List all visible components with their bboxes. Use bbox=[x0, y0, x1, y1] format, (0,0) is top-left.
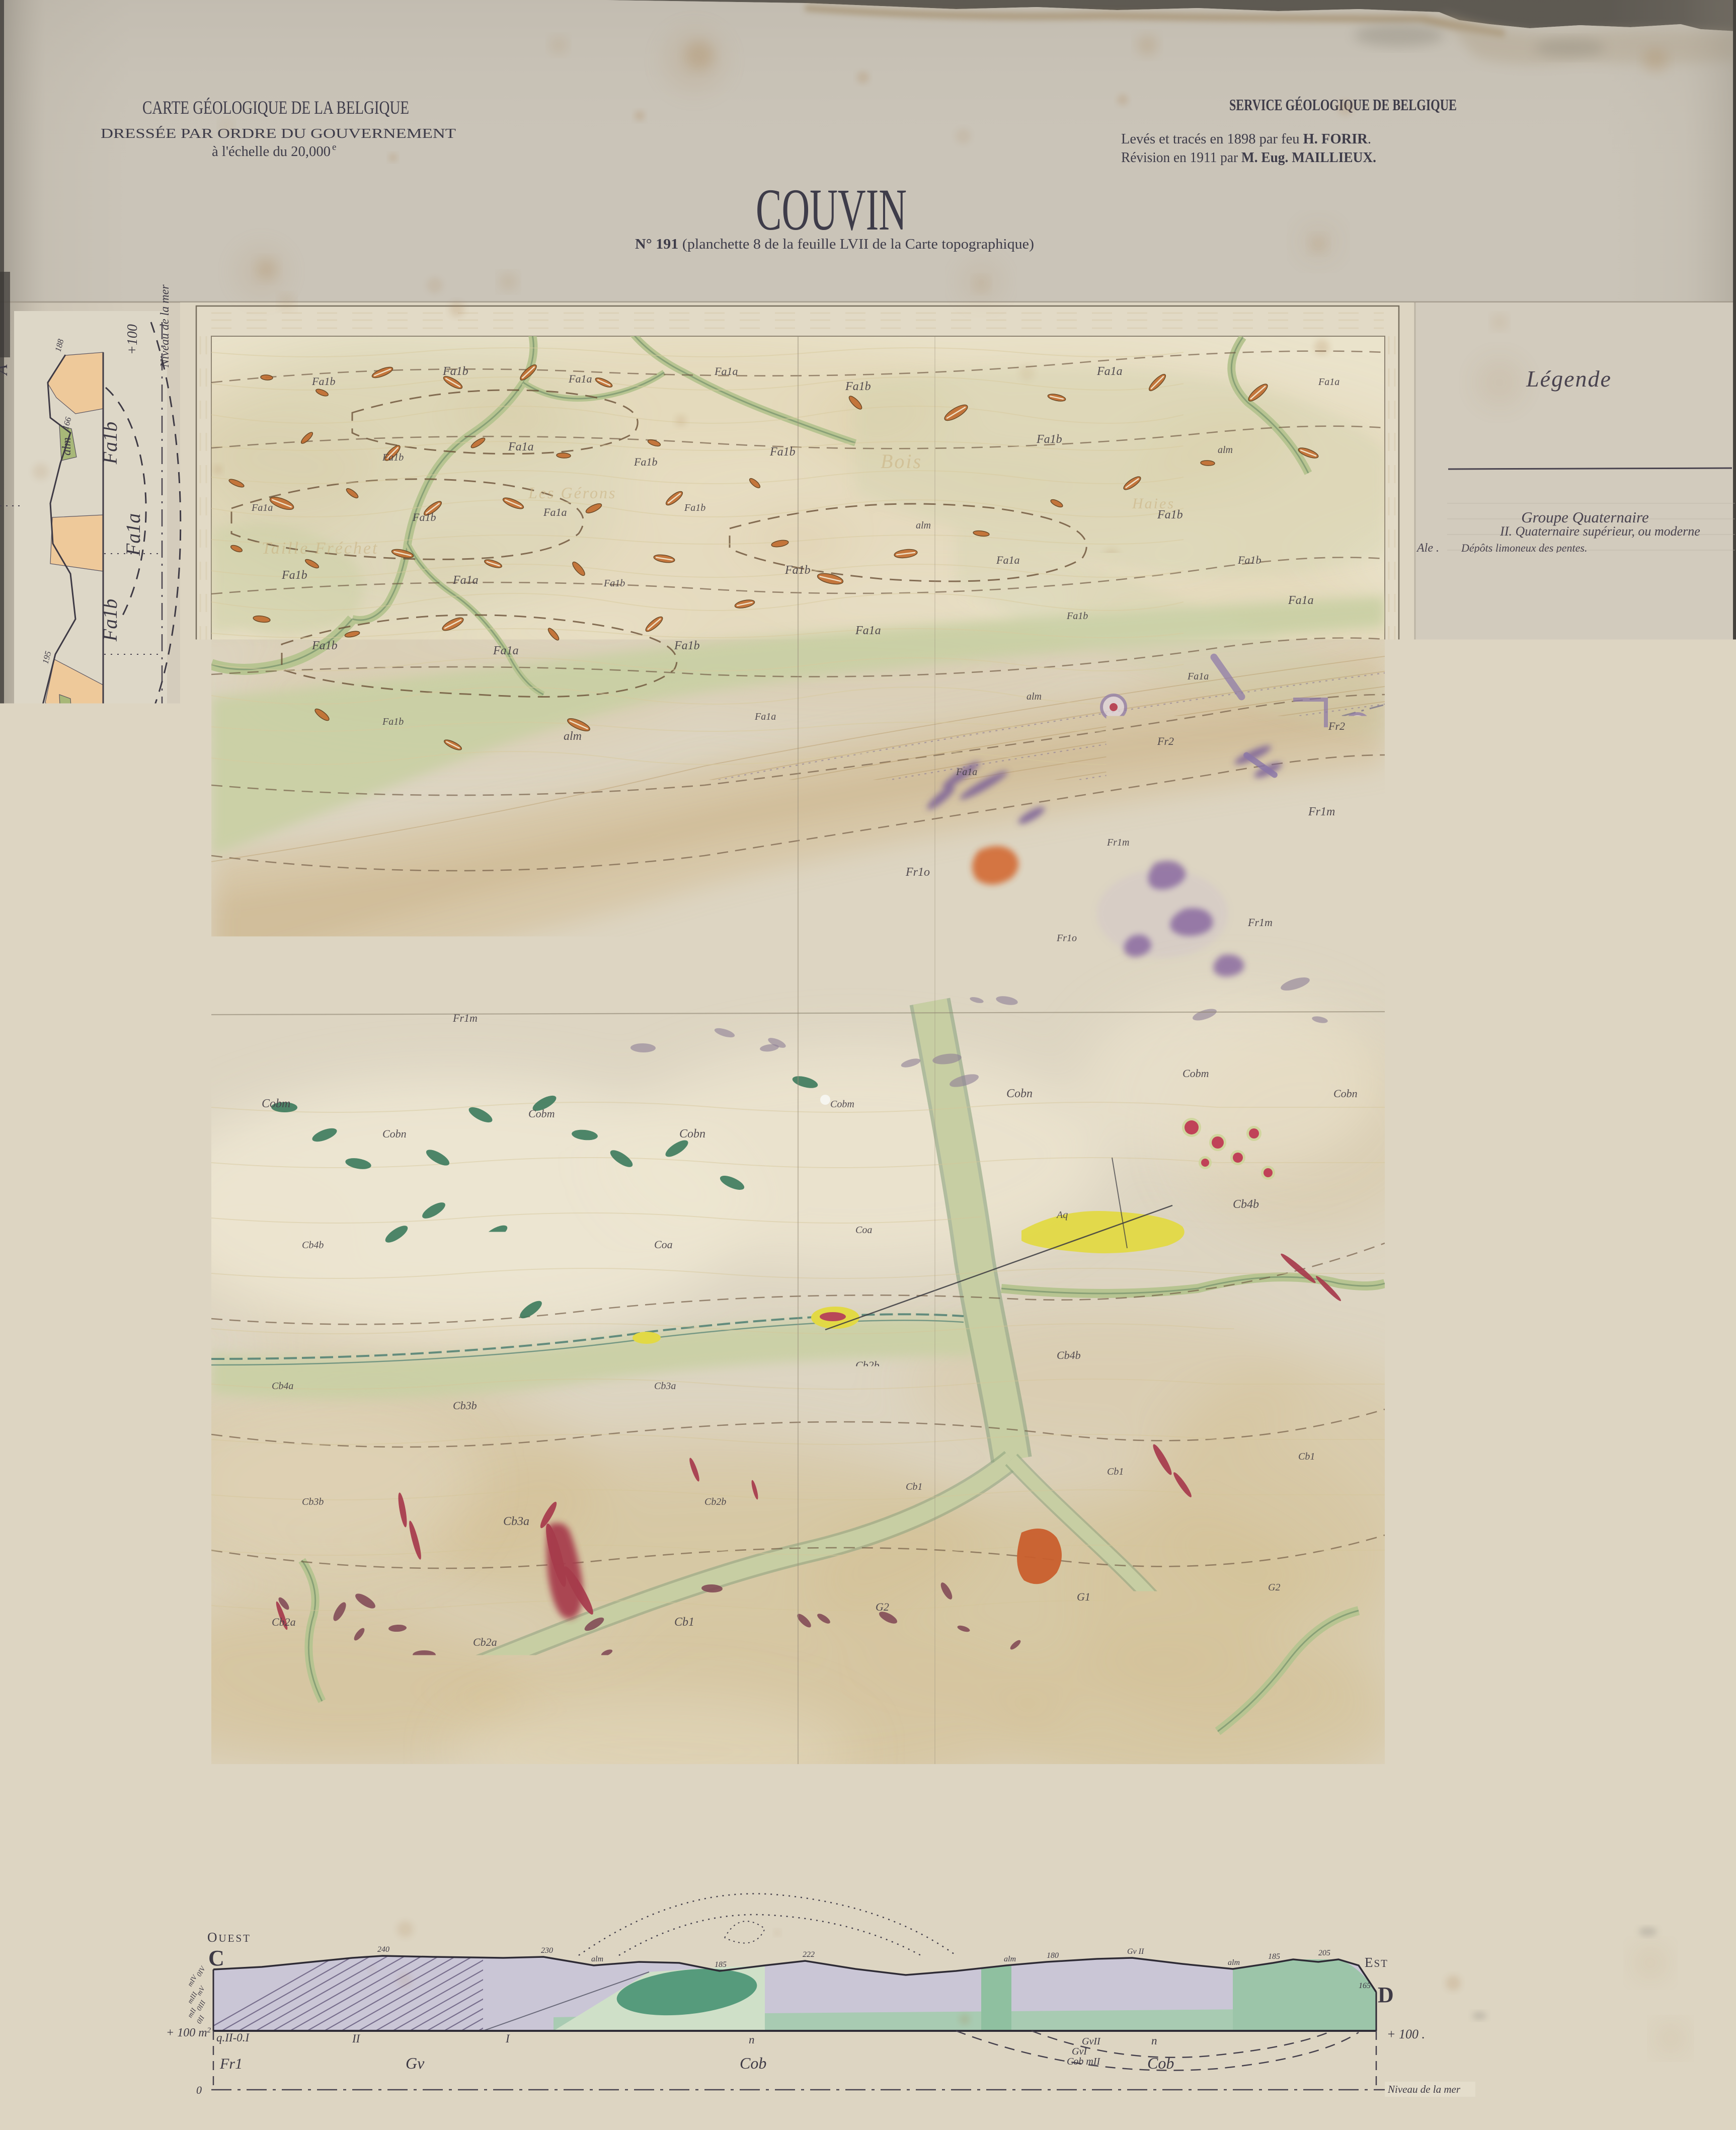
svg-text:Fa1b: Fa1b bbox=[382, 452, 404, 463]
svg-text:Cobn: Cobn bbox=[679, 1127, 705, 1140]
svg-text:Fa1a: Fa1a bbox=[452, 574, 479, 587]
svg-text:Fr1 pII: Fr1 pII bbox=[1412, 922, 1444, 934]
svg-text:ay.: ay. bbox=[6, 758, 21, 773]
svg-text:Alm.: Alm. bbox=[1416, 554, 1440, 567]
svg-text:Cb2a: Cb2a bbox=[272, 1616, 296, 1628]
svg-text:m: m bbox=[104, 1262, 117, 1270]
svg-text:Fa1a: Fa1a bbox=[1096, 365, 1123, 378]
svg-text:G1: G1 bbox=[1107, 1696, 1121, 1709]
svg-text:Fr1m: Fr1m bbox=[1308, 805, 1335, 818]
svg-text:Fa1b: Fa1b bbox=[412, 511, 436, 523]
svg-text:Dévonien supérieur: Dévonien supérieur bbox=[1529, 797, 1645, 813]
svg-text:Dépôts limoneux des pentes.: Dépôts limoneux des pentes. bbox=[1461, 542, 1588, 554]
svg-text:Δ: Δ bbox=[1416, 613, 1424, 625]
svg-text:Aisne R.eau — Ch.ée de Bruxell: Aisne R.eau — Ch.ée de Bruxelles à Bouss… bbox=[584, 1784, 594, 1943]
svg-text:Bonne: Bonne bbox=[493, 1206, 537, 1222]
svg-text:Cobn.II: Cobn.II bbox=[1417, 1177, 1453, 1189]
svg-text:Cb4b: Cb4b bbox=[1233, 1198, 1259, 1211]
svg-text:Cb2b: Cb2b bbox=[704, 1496, 726, 1507]
svg-text:Fa1b: Fa1b bbox=[382, 716, 404, 727]
svg-text:G1: G1 bbox=[704, 1718, 717, 1729]
svg-text:Fa1a: Fa1a bbox=[251, 502, 273, 513]
svg-text:I: I bbox=[505, 2032, 510, 2045]
svg-text:Cb4b: Cb4b bbox=[478, 1258, 504, 1271]
svg-text:Schistes noduleux à Spirifer p: Schistes noduleux à Spirifer pachyrhynch… bbox=[1469, 936, 1636, 947]
svg-text:Cb2a.: Cb2a. bbox=[1417, 1451, 1444, 1463]
svg-text:alm: alm bbox=[60, 437, 73, 455]
svg-text:Calcaire à Orthoceras nodulosu: Calcaire à Orthoceras nodulosum bbox=[1461, 1166, 1606, 1178]
svg-text:Cb1.: Cb1. bbox=[1417, 1475, 1439, 1487]
svg-text:alm: alm bbox=[38, 1362, 50, 1379]
svg-text:argile impure . ( Série de Teg: argile impure . ( Série de Tegelen ) = O… bbox=[1461, 684, 1638, 696]
svg-text:Schistes à Spirifer mucronatus: Schistes à Spirifer mucronatus , Sp. und… bbox=[1470, 1126, 1667, 1137]
svg-text:N° 191 (planchette 8 de la feu: N° 191 (planchette 8 de la feuille LVII … bbox=[635, 236, 1034, 252]
svg-text:180: 180 bbox=[1047, 1951, 1059, 1960]
svg-text:222: 222 bbox=[803, 1950, 815, 1959]
svg-text:Fr1 mI: Fr1 mI bbox=[1412, 1026, 1443, 1038]
svg-text:alm: alm bbox=[58, 747, 71, 765]
svg-text:Fr2: Fr2 bbox=[1157, 735, 1174, 747]
svg-text:DRESSÉE PAR ORDRE DU GOUVERNEM: DRESSÉE PAR ORDRE DU GOUVERNEMENT bbox=[101, 126, 456, 141]
svg-text:G1: G1 bbox=[1077, 1590, 1090, 1603]
svg-text:b: b bbox=[103, 1644, 118, 1650]
svg-text:+100: +100 bbox=[125, 324, 140, 355]
svg-text:alm: alm bbox=[1027, 691, 1042, 702]
svg-text:Fr2.: Fr2. bbox=[1416, 885, 1437, 897]
svg-text:Schistes à Spirifer speciosus: Schistes à Spirifer speciosus . bbox=[1461, 1177, 1587, 1189]
svg-text:Étage Aquitanien (Aq): Étage Aquitanien (Aq) bbox=[1529, 731, 1651, 746]
svg-text:Récif rouge de base .: Récif rouge de base . bbox=[1469, 1002, 1549, 1012]
svg-text:Fr1o: Fr1o bbox=[654, 993, 674, 1004]
svg-text:Phyllades, grauwacke, grès et: Phyllades, grauwacke, grès et psammites.… bbox=[1461, 1441, 1677, 1452]
svg-text:Cb3b: Cb3b bbox=[453, 1399, 477, 1412]
svg-text:Cb2: Cb2 bbox=[131, 1643, 148, 1668]
svg-text:G2: G2 bbox=[906, 1706, 920, 1719]
svg-text:Légende: Légende bbox=[1526, 366, 1612, 392]
svg-text:Fr1 oIII: Fr1 oIII bbox=[1412, 987, 1448, 999]
svg-text:COUVIN: COUVIN bbox=[756, 177, 907, 243]
svg-text:Ch.ée de Nieumont: Ch.ée de Nieumont bbox=[1053, 1873, 1063, 1943]
svg-text:Fr1o: Fr1o bbox=[1056, 933, 1077, 944]
svg-text:alm: alm bbox=[282, 802, 297, 813]
svg-text:Cb3a: Cb3a bbox=[503, 1515, 529, 1528]
svg-text:Gaspard: Gaspard bbox=[755, 1649, 811, 1664]
svg-text:Fa1b: Fa1b bbox=[684, 502, 705, 513]
svg-text:Calcaire à Myophoria transrhen: Calcaire à Myophoria transrhenana ( Gvb … bbox=[1474, 1047, 1652, 1058]
svg-text:Fa1a: Fa1a bbox=[493, 644, 519, 657]
svg-text:Cobm: Cobm bbox=[1182, 1067, 1209, 1080]
svg-text:Schistes calcareux et grauwack: Schistes calcareux et grauwacke à Sp. cu… bbox=[1461, 1242, 1669, 1253]
svg-text:Fr1 pI: Fr1 pI bbox=[1412, 1000, 1441, 1012]
svg-text:Schistes et grès rouges et ver: Schistes et grès rouges et verts de Wine… bbox=[1461, 1351, 1663, 1362]
svg-text:Étage Couvinien ( Co ): Étage Couvinien ( Co ) bbox=[1534, 1135, 1670, 1152]
svg-text:II: II bbox=[352, 2032, 361, 2045]
svg-text:Fa1a: Fa1a bbox=[1416, 852, 1442, 864]
svg-text:Levés et tracés en 1898 par fe: Levés et tracés en 1898 par feu H. FORIR… bbox=[1121, 131, 1371, 147]
svg-text:Fa1b: Fa1b bbox=[634, 455, 657, 468]
svg-text:0: 0 bbox=[196, 2084, 202, 2096]
svg-text:GvII: GvII bbox=[1419, 1112, 1440, 1125]
svg-text:Assise burnotienne ( Cb4 ): Assise burnotienne ( Cb4 ) bbox=[1517, 1326, 1652, 1340]
svg-text:Cailloux, gravier, sable du fo: Cailloux, gravier, sable du fond des val… bbox=[1461, 593, 1683, 604]
svg-text:II. Quaternaire supérieur, ou: II. Quaternaire supérieur, ou moderne bbox=[1500, 524, 1700, 539]
svg-text:Étage Gedinnien ( G ): Étage Gedinnien ( G ) bbox=[1522, 1502, 1652, 1519]
svg-text:Fa1b: Fa1b bbox=[769, 445, 796, 459]
svg-text:Grauwacke à Tropidoleptus cari: Grauwacke à Tropidoleptus carinatus ( Cb… bbox=[1461, 1388, 1681, 1399]
svg-text:q.II-0.I: q.II-0.I bbox=[216, 2031, 250, 2044]
svg-text:Ch.ée de Bourse: Ch.ée de Bourse bbox=[817, 1883, 827, 1943]
svg-text:240: 240 bbox=[377, 1945, 389, 1954]
svg-text:alm: alm bbox=[916, 520, 931, 531]
svg-text:Eau Noire , Riv.re: Eau Noire , Riv.re bbox=[1335, 1878, 1346, 1943]
svg-text:Cb2b: Cb2b bbox=[855, 1359, 880, 1372]
svg-text:Fr1 mV: Fr1 mV bbox=[1412, 935, 1447, 947]
svg-text:Cb2a: Cb2a bbox=[473, 1636, 497, 1648]
svg-text:Fa1a: Fa1a bbox=[122, 513, 144, 556]
svg-text:G1: G1 bbox=[302, 1716, 317, 1729]
svg-text:Assise d’ Oignies ( Gc ): Assise d’ Oignies ( Gc ) bbox=[1460, 1532, 1561, 1544]
svg-text:Cobm: Cobm bbox=[262, 1097, 290, 1110]
svg-text:b: b bbox=[103, 1448, 118, 1454]
svg-text:Eau Noire , Riv.re: Eau Noire , Riv.re bbox=[974, 1878, 984, 1943]
svg-text:Taille Fréchet: Taille Fréchet bbox=[262, 539, 378, 558]
svg-text:Schistes de base .: Schistes de base . bbox=[1461, 1213, 1535, 1226]
svg-text:Cobm: Cobm bbox=[830, 1099, 854, 1110]
svg-text:Fa1b: Fa1b bbox=[442, 365, 468, 378]
svg-text:Alluvions modernes des vallées: Alluvions modernes des vallées. bbox=[1460, 554, 1603, 566]
svg-text:Frasnien inférieur: Frasnien inférieur bbox=[1554, 1034, 1651, 1049]
svg-text:Bois: Bois bbox=[881, 450, 922, 473]
svg-text:Ch.in de Dailly à Boussu: Ch.in de Dailly à Boussu bbox=[428, 1852, 438, 1943]
svg-text:Coa: Coa bbox=[132, 1376, 148, 1399]
svg-text:à l'échelle du 20,000: à l'échelle du 20,000 bbox=[212, 144, 331, 160]
svg-text:Récifs rouges du sommet: Récifs rouges du sommet bbox=[1469, 923, 1564, 934]
svg-text:Cobn: Cobn bbox=[1333, 1087, 1358, 1100]
svg-text:Dailly: Dailly bbox=[281, 1139, 341, 1162]
svg-text:Cb3a: Cb3a bbox=[654, 1381, 676, 1392]
svg-text:Cb1: Cb1 bbox=[1107, 1466, 1124, 1477]
svg-text:EST: EST bbox=[1365, 1955, 1388, 1970]
svg-text:Fa1a: Fa1a bbox=[568, 372, 592, 385]
svg-text:Fa1a: Fa1a bbox=[956, 767, 977, 778]
svg-text:Frasnes: Frasnes bbox=[754, 822, 814, 839]
svg-text:Cb1: Cb1 bbox=[1298, 1451, 1315, 1462]
svg-text:+ 100 .: + 100 . bbox=[1387, 2027, 1425, 2041]
svg-text:Cb2b: Cb2b bbox=[1258, 1340, 1280, 1351]
svg-text:Cobn: Cobn bbox=[1006, 1087, 1033, 1100]
svg-text:Fa1b: Fa1b bbox=[281, 569, 307, 582]
svg-text:Étage Poederlien (Po): Étage Poederlien (Po) bbox=[1524, 669, 1646, 684]
svg-text:Fa1a: Fa1a bbox=[754, 711, 776, 722]
svg-text:Petite: Petite bbox=[956, 1422, 998, 1438]
svg-text:Fr1 oI: Fr1 oI bbox=[1416, 1056, 1447, 1069]
svg-text:0: 0 bbox=[152, 1846, 167, 1852]
svg-text:Cb4: Cb4 bbox=[131, 1472, 148, 1497]
svg-text:Cobn.I: Cobn.I bbox=[1417, 1213, 1450, 1226]
svg-text:alm: alm bbox=[591, 1955, 603, 1963]
svg-text:Gîtes métallifères: Gîtes métallifères bbox=[1449, 1589, 1527, 1602]
svg-text:Fr1m: Fr1m bbox=[855, 961, 882, 974]
svg-text:Cb1: Cb1 bbox=[674, 1616, 694, 1629]
svg-text:Eau Noire , Riv.re: Eau Noire , Riv.re bbox=[1200, 1878, 1210, 1943]
svg-text:Cb3b.: Cb3b. bbox=[1417, 1374, 1444, 1387]
svg-text:II. Coblenz Stufe .: II. Coblenz Stufe . bbox=[1526, 1309, 1624, 1324]
svg-text:G.2.: G.2. bbox=[1417, 1519, 1437, 1532]
svg-text:C: C bbox=[208, 1946, 224, 1970]
svg-text:R.te de Mariembourg et voie fe: R.te de Mariembourg et voie ferrée bbox=[941, 1815, 952, 1943]
svg-text:Cobn: Cobn bbox=[382, 1127, 407, 1140]
svg-text:GvI: GvI bbox=[1419, 1124, 1437, 1137]
svg-text:G2: G2 bbox=[1308, 1691, 1322, 1704]
svg-text:Grauwacke de la base .: Grauwacke de la base . bbox=[1461, 1452, 1556, 1463]
svg-text:165: 165 bbox=[1359, 1982, 1371, 1990]
svg-text:Fa1a: Fa1a bbox=[855, 624, 881, 637]
svg-text:Cob mII: Cob mII bbox=[1067, 2056, 1100, 2067]
svg-text:a: a bbox=[103, 1604, 118, 1610]
svg-text:Fa1b: Fa1b bbox=[845, 380, 871, 393]
svg-text:Les Gérons: Les Gérons bbox=[528, 484, 616, 502]
svg-text:Po3a.: Po3a. bbox=[1416, 694, 1442, 706]
svg-text:Fr1: Fr1 bbox=[219, 2056, 243, 2072]
svg-text:Assise Taunusienne ( Cb1 ): Assise Taunusienne ( Cb1 ) bbox=[1521, 1462, 1658, 1476]
svg-text:Fr1m: Fr1m bbox=[1247, 916, 1273, 929]
svg-text:n: n bbox=[749, 2033, 755, 2046]
svg-text:a: a bbox=[103, 1538, 118, 1545]
svg-text:Calcaire à Stringocephalus Bur: Calcaire à Stringocephalus Burtini ( Gva… bbox=[1470, 1114, 1643, 1125]
svg-text:Fr1 oIV: Fr1 oIV bbox=[1412, 948, 1448, 960]
svg-text:Fr1 mII: Fr1 mII bbox=[1412, 1013, 1447, 1025]
svg-text:185: 185 bbox=[1268, 1952, 1280, 1961]
svg-text:A: A bbox=[0, 364, 11, 376]
svg-text:+100: +100 bbox=[92, 1831, 106, 1860]
svg-text:Fa1a: Fa1a bbox=[1288, 594, 1314, 607]
svg-text:Fr1m: Fr1m bbox=[704, 897, 727, 908]
svg-text:Étage Givetien ( Gv ): Étage Givetien ( Gv ) bbox=[1521, 1096, 1659, 1114]
svg-text:Assise Hundsrückienne ( Cb2 ): Assise Hundsrückienne ( Cb2 ) bbox=[1514, 1423, 1671, 1436]
svg-text:Fr1o: Fr1o bbox=[905, 866, 930, 879]
svg-text:Fa1a: Fa1a bbox=[1187, 671, 1209, 682]
svg-text:G.1.: G.1. bbox=[1417, 1532, 1437, 1544]
svg-text:CARTE GÉOLOGIQUE DE LA BELGIQU: CARTE GÉOLOGIQUE DE LA BELGIQUE bbox=[142, 97, 409, 118]
svg-text:Cb3a.: Cb3a. bbox=[1417, 1386, 1444, 1399]
svg-text:Gourdeux: Gourdeux bbox=[453, 1447, 525, 1463]
svg-text:Fr2: Fr2 bbox=[127, 731, 148, 760]
svg-text:Schistes et grès noirs de Vire: Schistes et grès noirs de Vireux ( Cb3 ) bbox=[1461, 1376, 1618, 1387]
svg-text:Cb1: Cb1 bbox=[906, 1481, 922, 1492]
svg-text:Fa1b: Fa1b bbox=[311, 375, 335, 388]
svg-text:Aq.: Aq. bbox=[1416, 755, 1433, 768]
svg-text:Fa1a: Fa1a bbox=[508, 440, 534, 453]
svg-text:Gv: Gv bbox=[127, 888, 148, 910]
svg-text:GvII: GvII bbox=[1082, 2036, 1101, 2047]
svg-text:Dévonien moyen.: Dévonien moyen. bbox=[1529, 1073, 1641, 1091]
svg-text:n: n bbox=[1151, 2034, 1157, 2047]
svg-text:Calcaire à Stromatoparoides (: Calcaire à Stromatoparoides ( Gvb ) bbox=[1474, 1057, 1622, 1069]
svg-text:Groupe Quaternaire: Groupe Quaternaire bbox=[1521, 508, 1649, 526]
svg-text:Haies: Haies bbox=[1132, 495, 1175, 512]
svg-text:Champs: Champs bbox=[352, 1674, 408, 1690]
svg-text:Cb3b: Cb3b bbox=[302, 1496, 324, 1507]
svg-text:Coa: Coa bbox=[855, 1225, 872, 1236]
svg-text:Aq: Aq bbox=[1056, 1209, 1068, 1221]
svg-text:Fr1m: Fr1m bbox=[1107, 837, 1129, 848]
svg-text:Cb4a.: Cb4a. bbox=[1417, 1350, 1444, 1362]
svg-text:G2: G2 bbox=[876, 1601, 889, 1613]
svg-text:Grès d’Anor .: Grès d’Anor . bbox=[1461, 1475, 1520, 1487]
svg-text:Fa1a: Fa1a bbox=[1318, 376, 1339, 388]
svg-text:Fa1a: Fa1a bbox=[714, 365, 738, 377]
svg-text:Calcaire gris à Pentamerus b: Calcaire gris à Pentamerus brevirostris bbox=[1469, 988, 1626, 999]
svg-text:alm: alm bbox=[503, 817, 518, 828]
svg-text:Schistes à Leiorhynchus formos: Schistes à Leiorhynchus formosus bbox=[1469, 975, 1599, 986]
svg-text:Cob: Cob bbox=[127, 1163, 148, 1194]
svg-text:OUEST: OUEST bbox=[207, 1930, 251, 1945]
svg-text:Fa1a: Fa1a bbox=[996, 554, 1019, 566]
svg-text:230: 230 bbox=[541, 1946, 553, 1955]
svg-text:Fa1b: Fa1b bbox=[674, 639, 700, 652]
svg-text:G2: G2 bbox=[503, 1731, 518, 1744]
svg-text:Fr2: Fr2 bbox=[729, 795, 748, 808]
svg-text:Grauwacke à Sp. arduennensis (: Grauwacke à Sp. arduennensis ( Coa en pa… bbox=[1461, 1340, 1656, 1351]
svg-text:Sable marin . ( Om ): Sable marin . ( Om ) bbox=[1461, 755, 1548, 768]
svg-text:Fa1b: Fa1b bbox=[784, 564, 811, 577]
svg-text:Cb4b: Cb4b bbox=[302, 1240, 324, 1251]
svg-text:Fr1 mIV: Fr1 mIV bbox=[1412, 961, 1450, 973]
svg-text:Assise ahrienne ( Cb3 ): Assise ahrienne ( Cb3 ) bbox=[1532, 1361, 1657, 1375]
svg-text:Fa1b: Fa1b bbox=[1036, 433, 1062, 446]
svg-text:Fa1a: Fa1a bbox=[543, 506, 567, 518]
svg-text:Fr2: Fr2 bbox=[1328, 720, 1345, 732]
svg-text:Fa1b: Fa1b bbox=[1237, 554, 1261, 566]
svg-text:Fa1b: Fa1b bbox=[603, 578, 625, 589]
svg-text:Niveau de la mer: Niveau de la mer bbox=[159, 284, 172, 368]
svg-text:n: n bbox=[105, 1364, 118, 1370]
svg-text:cailloutis (Onx) et sables gra: cailloutis (Onx) et sables graveleux (On… bbox=[1461, 696, 1723, 706]
svg-text:Révision en 1911 par M. Eug. M: Révision en 1911 par M. Eug. MAILLIEUX. bbox=[1121, 149, 1376, 166]
svg-text:Gv: Gv bbox=[406, 2054, 425, 2072]
svg-text:Cobm: Cobm bbox=[528, 1107, 555, 1120]
svg-text:Chemin: Chemin bbox=[352, 697, 408, 713]
svg-text:Couvin: Couvin bbox=[704, 1344, 763, 1363]
svg-text:alm: alm bbox=[1218, 444, 1233, 455]
svg-text:Coa: Coa bbox=[654, 1238, 673, 1251]
svg-text:Cob: Cob bbox=[740, 2054, 766, 2072]
svg-text:Niveau de la mer: Niveau de la mer bbox=[1387, 2083, 1461, 2095]
svg-text:Gv II: Gv II bbox=[1127, 1947, 1144, 1956]
svg-text:Pétigny: Pétigny bbox=[1157, 1546, 1220, 1564]
svg-text:e: e bbox=[332, 142, 336, 153]
svg-text:Cob: Cob bbox=[1147, 2054, 1174, 2072]
svg-text:D: D bbox=[1378, 1983, 1394, 2007]
svg-text:Ale .: Ale . bbox=[1416, 542, 1439, 555]
svg-text:G2: G2 bbox=[1268, 1582, 1280, 1593]
svg-text:Cb4a: Cb4a bbox=[272, 1381, 293, 1392]
svg-text:Coa .: Coa . bbox=[1417, 1241, 1441, 1253]
svg-text:Fr1m: Fr1m bbox=[452, 1012, 478, 1024]
svg-text:Fa1b: Fa1b bbox=[99, 422, 121, 465]
svg-text:Fa1b: Fa1b bbox=[99, 599, 121, 642]
svg-text:Frasnien moyen: Frasnien moyen bbox=[1560, 893, 1645, 907]
svg-text:Schistes à Camarophoria megist: Schistes à Camarophoria megistana bbox=[1469, 962, 1608, 973]
svg-text:alm: alm bbox=[1004, 1955, 1016, 1963]
svg-text:alm: alm bbox=[1228, 1958, 1240, 1967]
svg-text:Schistes à Receptaculites Nept: Schistes à Receptaculites Neptuni bbox=[1469, 1015, 1598, 1025]
svg-text:Cb3: Cb3 bbox=[131, 1579, 148, 1604]
svg-text:Cb1: Cb1 bbox=[131, 1729, 148, 1754]
svg-text:Fr1o: Fr1o bbox=[503, 921, 527, 934]
svg-text:GvI: GvI bbox=[1072, 2046, 1087, 2057]
svg-text:Calcaire à Pachystroma .: Calcaire à Pachystroma . bbox=[1469, 949, 1567, 960]
svg-text:205: 205 bbox=[1318, 1949, 1330, 1957]
svg-text:Fr1 mIII: Fr1 mIII bbox=[1412, 974, 1450, 986]
svg-text:a: a bbox=[103, 1693, 118, 1700]
svg-text:Couvinien supérieur ( Cob ): Couvinien supérieur ( Cob ) bbox=[1531, 1151, 1679, 1166]
svg-text:Cb4b: Cb4b bbox=[1057, 1349, 1081, 1361]
svg-text:Fa1b: Fa1b bbox=[1066, 611, 1088, 622]
svg-text:alm: alm bbox=[564, 730, 582, 743]
svg-text:G2: G2 bbox=[131, 1790, 148, 1808]
svg-text:b: b bbox=[103, 1578, 118, 1585]
svg-text:185: 185 bbox=[715, 1960, 727, 1969]
svg-text:Fr1o: Fr1o bbox=[281, 986, 304, 999]
svg-text:+ 100 m2: + 100 m2 bbox=[166, 2026, 211, 2039]
svg-text:I Siegener Stufe .: I Siegener Stufe . bbox=[1533, 1404, 1626, 1419]
svg-text:Cavernes à ossements.: Cavernes à ossements. bbox=[1461, 613, 1557, 625]
svg-text:Dévonien inférieur: Dévonien inférieur bbox=[1524, 1262, 1646, 1280]
svg-text:Couvinien moyen ( Cob ): Couvinien moyen ( Cob ) bbox=[1539, 1190, 1671, 1205]
svg-text:Fr1m: Fr1m bbox=[322, 896, 347, 908]
svg-text:Assise de Saint - Hubert ( Gd: Assise de Saint - Hubert ( Gd ) bbox=[1460, 1519, 1591, 1532]
svg-text:Fa1b: Fa1b bbox=[311, 639, 338, 652]
svg-text:Hesbayen - q3: Hesbayen - q3 bbox=[1547, 578, 1612, 590]
svg-text:Couvinien inférieur ( Coa en p: Couvinien inférieur ( Coa en partie) bbox=[1521, 1228, 1704, 1241]
